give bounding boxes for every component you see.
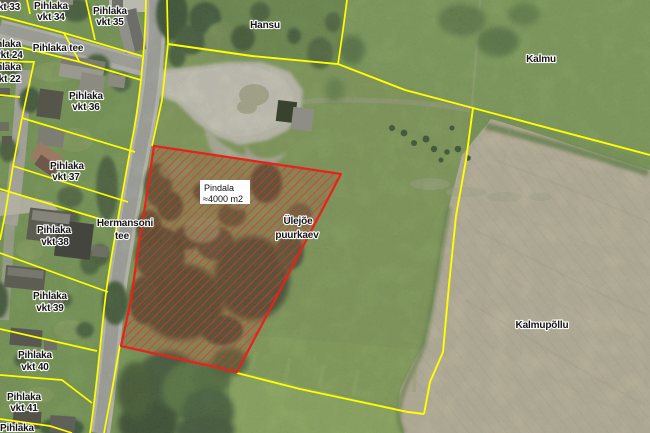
svg-text:Pihlaka: Pihlaka [0, 39, 22, 50]
svg-text:vkt 37: vkt 37 [52, 172, 80, 183]
svg-text:Ülejõe: Ülejõe [283, 214, 313, 227]
svg-text:vkt 36: vkt 36 [72, 102, 100, 113]
svg-text:kt 33: kt 33 [0, 2, 21, 13]
svg-text:Hermansoni: Hermansoni [97, 218, 154, 229]
svg-text:vkt 38: vkt 38 [41, 237, 69, 248]
svg-text:Hansu: Hansu [250, 20, 280, 31]
svg-text:Kalmupõllu: Kalmupõllu [516, 320, 569, 331]
svg-text:Pihlaka: Pihlaka [50, 161, 85, 172]
svg-text:vkt 34: vkt 34 [37, 12, 65, 23]
svg-text:Pihlaka: Pihlaka [93, 6, 128, 17]
svg-text:vkt 24: vkt 24 [0, 50, 23, 61]
svg-text:Kalmu: Kalmu [526, 54, 556, 65]
svg-text:Pihlaka: Pihlaka [18, 350, 53, 361]
svg-text:Pihlaka: Pihlaka [69, 91, 104, 102]
svg-text:Pihlaka: Pihlaka [33, 291, 68, 302]
svg-text:vkt 41: vkt 41 [10, 403, 38, 414]
svg-text:Pihlaka: Pihlaka [7, 392, 42, 403]
svg-text:Pihlaka tee: Pihlaka tee [33, 43, 84, 54]
svg-text:Pihlaka: Pihlaka [34, 1, 69, 12]
svg-text:≈4000 m2: ≈4000 m2 [203, 194, 243, 204]
svg-text:tee: tee [115, 231, 130, 242]
svg-text:Pindala: Pindala [204, 183, 234, 193]
svg-text:puurkaev: puurkaev [275, 230, 319, 241]
svg-text:Pihlaka: Pihlaka [0, 62, 22, 73]
svg-text:vkt 39: vkt 39 [36, 303, 64, 314]
svg-text:Pihlaka: Pihlaka [37, 225, 72, 236]
svg-text:vkt 22: vkt 22 [0, 74, 21, 85]
svg-text:vkt 40: vkt 40 [21, 362, 49, 373]
svg-text:vkt 35: vkt 35 [96, 17, 124, 28]
svg-text:Pihlaka: Pihlaka [0, 423, 35, 433]
